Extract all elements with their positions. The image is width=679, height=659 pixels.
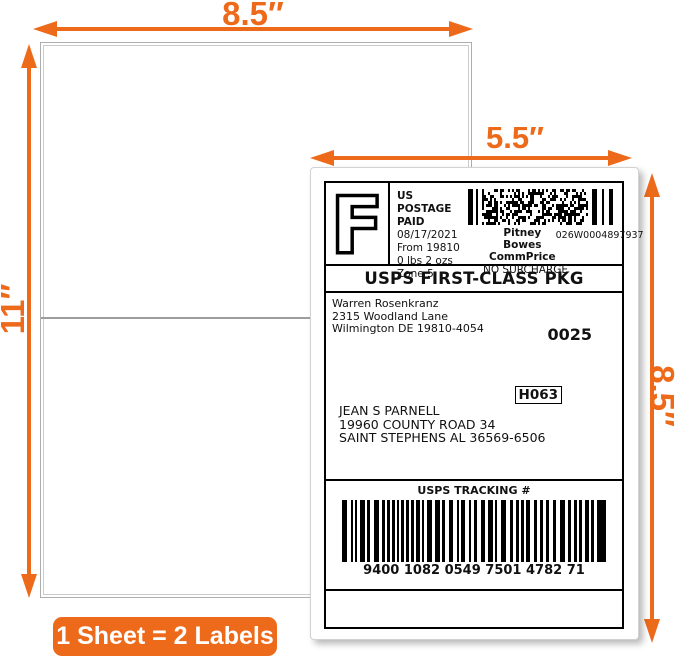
meter-block: Pitney Bowes CommPrice 026W0004897937 NO… xyxy=(475,188,618,262)
meter-vendor-name: Pitney Bowes xyxy=(489,227,556,251)
meter-rate-name: CommPrice xyxy=(489,251,556,263)
recipient-street: 19960 COUNTY ROAD 34 xyxy=(339,418,546,432)
batch-number: 0025 xyxy=(547,325,592,344)
sender-city: Wilmington DE 19810-4054 xyxy=(332,323,484,336)
postage-info-block: US POSTAGE PAID 08/17/2021 From 19810 0 … xyxy=(397,188,475,262)
meter-vendor: Pitney Bowes CommPrice xyxy=(489,227,556,263)
postage-paid-text: US POSTAGE PAID xyxy=(397,190,469,229)
shipping-label: F US POSTAGE PAID 08/17/2021 From 19810 … xyxy=(310,167,639,640)
postage-2d-barcode-icon xyxy=(468,189,616,225)
sender-name: Warren Rosenkranz xyxy=(332,298,484,311)
postage-indicia-section: F US POSTAGE PAID 08/17/2021 From 19810 … xyxy=(326,183,622,266)
shipping-label-frame: F US POSTAGE PAID 08/17/2021 From 19810 … xyxy=(324,181,624,629)
tracking-section: USPS TRACKING # 9400 1082 0549 7501 4782… xyxy=(326,481,622,591)
label-blank-area xyxy=(326,591,622,627)
stamp-letter: F xyxy=(334,191,380,257)
stamp-letter-icon: F xyxy=(334,191,380,257)
sheet-height-arrow-icon xyxy=(21,44,37,598)
recipient-name: JEAN S PARNELL xyxy=(339,404,546,418)
meter-number: 026W0004897937 xyxy=(556,227,645,241)
postage-class-cell: F xyxy=(326,183,390,264)
meter-row: Pitney Bowes CommPrice 026W0004897937 xyxy=(475,227,618,263)
tracking-header: USPS TRACKING # xyxy=(326,485,622,497)
product-image: 8.5″ 11″ 5.5″ 8.5″ F xyxy=(0,0,679,659)
postage-origin-zip: From 19810 xyxy=(397,242,475,255)
service-class-banner: USPS FIRST-CLASS PKG xyxy=(326,266,622,293)
postage-details: US POSTAGE PAID 08/17/2021 From 19810 0 … xyxy=(390,183,622,264)
postage-date: 08/17/2021 xyxy=(397,229,475,242)
label-height-arrow-icon xyxy=(644,173,660,643)
label-width-arrow-icon xyxy=(310,150,632,166)
recipient-address: JEAN S PARNELL 19960 COUNTY ROAD 34 SAIN… xyxy=(339,404,546,445)
address-section: Warren Rosenkranz 2315 Woodland Lane Wil… xyxy=(326,293,622,481)
sheet-count-badge: 1 Sheet = 2 Labels xyxy=(53,617,277,656)
recipient-city: SAINT STEPHENS AL 36569-6506 xyxy=(339,431,546,445)
sheet-width-arrow-icon xyxy=(33,21,473,37)
sort-code-badge: H063 xyxy=(515,386,562,404)
tracking-barcode-icon xyxy=(342,500,606,562)
sender-address: Warren Rosenkranz 2315 Woodland Lane Wil… xyxy=(332,298,484,336)
tracking-number: 9400 1082 0549 7501 4782 71 xyxy=(326,563,622,578)
